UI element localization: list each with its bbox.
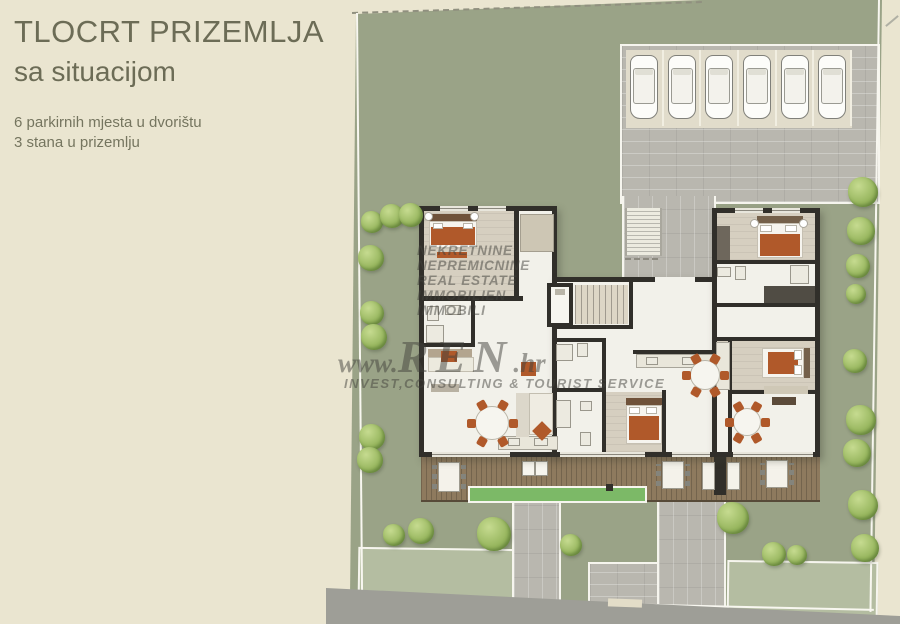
interior-staircase bbox=[575, 285, 628, 324]
deck-cabinet bbox=[727, 462, 740, 490]
tree-icon bbox=[717, 502, 749, 534]
nightstand bbox=[799, 219, 808, 228]
sliding-window bbox=[432, 452, 510, 457]
watermark-language: NEKRETNINE bbox=[417, 243, 530, 258]
garden-path-left bbox=[512, 497, 561, 604]
sliding-window bbox=[733, 452, 813, 457]
parking-stall bbox=[664, 50, 702, 126]
bed bbox=[626, 398, 662, 444]
deck-dining-table bbox=[766, 460, 788, 488]
deck-post bbox=[606, 484, 613, 491]
dining-chair bbox=[467, 419, 476, 428]
tree-icon bbox=[357, 447, 383, 473]
survey-tick bbox=[885, 15, 899, 27]
watermark-language: IMMOBILI bbox=[417, 303, 530, 318]
tree-icon bbox=[846, 284, 866, 304]
interior-wall bbox=[602, 338, 606, 457]
car-icon bbox=[818, 55, 846, 119]
car-icon bbox=[630, 55, 658, 119]
dining-table-round bbox=[690, 360, 720, 390]
interior-wall bbox=[629, 281, 633, 329]
tree-icon bbox=[787, 545, 807, 565]
tree-icon bbox=[847, 217, 875, 245]
dining-chair bbox=[682, 371, 691, 380]
tree-icon bbox=[762, 542, 786, 566]
watermark-url-suffix: .hr bbox=[513, 348, 545, 378]
watermark-url-prefix: www. bbox=[338, 348, 398, 378]
window bbox=[772, 208, 800, 213]
window bbox=[735, 208, 763, 213]
tree-icon bbox=[848, 490, 878, 520]
nightstand bbox=[750, 219, 759, 228]
bed bbox=[762, 348, 810, 378]
dining-chair bbox=[761, 418, 770, 427]
parking-lot bbox=[620, 44, 880, 204]
tree-icon bbox=[843, 349, 867, 373]
dresser bbox=[764, 386, 808, 394]
deck-divider-wall bbox=[714, 455, 726, 495]
tree-icon bbox=[383, 524, 405, 546]
tree-icon bbox=[848, 177, 878, 207]
nightstand bbox=[424, 212, 433, 221]
toilet bbox=[577, 343, 588, 357]
kitchen-cabinet bbox=[717, 226, 730, 260]
tree-icon bbox=[846, 254, 870, 278]
stairs-threshold-line bbox=[625, 258, 658, 260]
window bbox=[478, 206, 506, 211]
bathtub bbox=[556, 400, 571, 428]
dining-chair bbox=[509, 419, 518, 428]
title-block: TLOCRT PRIZEMLJA sa situacijom 6 parkirn… bbox=[14, 14, 324, 151]
shower bbox=[556, 344, 573, 361]
tree-icon bbox=[851, 534, 879, 562]
deck-dining-table bbox=[662, 461, 684, 489]
parking-stall bbox=[701, 50, 739, 126]
page-subtitle: sa situacijom bbox=[14, 56, 324, 88]
window bbox=[440, 206, 468, 211]
deck-dining-table bbox=[438, 462, 460, 492]
deck-grill bbox=[535, 461, 548, 476]
car-icon bbox=[743, 55, 771, 119]
tv-cabinet bbox=[772, 397, 796, 405]
parking-stall bbox=[814, 50, 852, 126]
nightstand bbox=[470, 212, 479, 221]
tree-icon bbox=[560, 534, 582, 556]
deck-grill bbox=[522, 461, 535, 476]
floor-plan-page: TLOCRT PRIZEMLJA sa situacijom 6 parkirn… bbox=[0, 0, 900, 624]
tree-icon bbox=[358, 245, 384, 271]
note-apartments: 3 stana u prizemlju bbox=[14, 134, 324, 151]
lawn-strip-planter bbox=[468, 486, 647, 503]
dining-table-round bbox=[733, 408, 761, 436]
watermark-language: IMMOBILIEN bbox=[417, 288, 530, 303]
dining-table-round bbox=[475, 406, 509, 440]
elevator bbox=[547, 283, 573, 327]
tree-icon bbox=[359, 424, 385, 450]
bed bbox=[757, 216, 803, 258]
wardrobe-closet bbox=[764, 286, 815, 303]
watermark-language: REAL ESTATE bbox=[417, 273, 530, 288]
kitchen-sink bbox=[508, 438, 520, 446]
parking-stall-strip bbox=[626, 50, 852, 128]
tree-icon bbox=[846, 405, 876, 435]
tree-icon bbox=[408, 518, 434, 544]
kitchen-sink bbox=[646, 357, 658, 365]
exterior-stairs bbox=[625, 208, 662, 256]
parking-stall bbox=[626, 50, 664, 126]
note-parking: 6 parkirnih mjesta u dvorištu bbox=[14, 114, 324, 131]
interior-wall bbox=[662, 390, 666, 457]
watermark-languages: NEKRETNINENEPREMICNINEREAL ESTATEIMMOBIL… bbox=[417, 243, 530, 318]
car-icon bbox=[668, 55, 696, 119]
kitchen-counter bbox=[716, 342, 730, 390]
page-title: TLOCRT PRIZEMLJA bbox=[14, 14, 324, 50]
shower bbox=[790, 265, 809, 284]
parking-stalls bbox=[626, 50, 852, 126]
car-icon bbox=[781, 55, 809, 119]
watermark-url-main: REN bbox=[398, 331, 514, 382]
sofa bbox=[516, 393, 529, 437]
entrance-door-opening bbox=[655, 277, 695, 282]
sliding-window bbox=[560, 452, 645, 457]
parking-stall bbox=[739, 50, 777, 126]
driveway-apron bbox=[608, 598, 642, 607]
dining-chair bbox=[720, 371, 729, 380]
tree-icon bbox=[399, 203, 423, 227]
tree-icon bbox=[477, 517, 511, 551]
toilet bbox=[580, 432, 591, 446]
sink bbox=[717, 267, 731, 277]
toilet bbox=[735, 266, 746, 280]
tree-icon bbox=[360, 301, 384, 325]
interior-wall bbox=[552, 338, 606, 342]
watermark-tagline: INVEST,CONSULTING & TOURIST SERVICE bbox=[344, 376, 665, 391]
car-icon bbox=[705, 55, 733, 119]
tree-icon bbox=[843, 439, 871, 467]
dining-chair bbox=[725, 418, 734, 427]
garden-path-right bbox=[657, 500, 726, 614]
sink bbox=[580, 401, 592, 411]
interior-wall bbox=[712, 303, 820, 307]
sliding-window bbox=[672, 452, 710, 457]
watermark-language: NEPREMICNINE bbox=[417, 258, 530, 273]
interior-wall bbox=[712, 260, 820, 264]
parking-stall bbox=[777, 50, 815, 126]
deck-cabinet bbox=[702, 462, 715, 490]
